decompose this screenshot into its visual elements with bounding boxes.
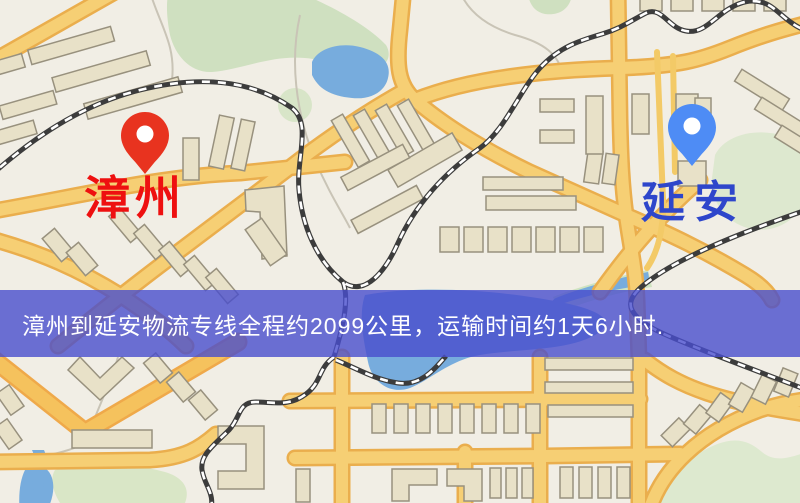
map-screenshot: 漳州 延安 漳州到延安物流专线全程约2099公里，运输时间约1天6小时. xyxy=(0,0,800,503)
route-info-text: 漳州到延安物流专线全程约2099公里，运输时间约1天6小时. xyxy=(22,307,664,341)
route-info-banner: 漳州到延安物流专线全程约2099公里，运输时间约1天6小时. xyxy=(0,290,800,357)
origin-city-label: 漳州 xyxy=(84,176,186,222)
destination-city-label: 延安 xyxy=(641,181,747,225)
map-background xyxy=(0,0,800,503)
